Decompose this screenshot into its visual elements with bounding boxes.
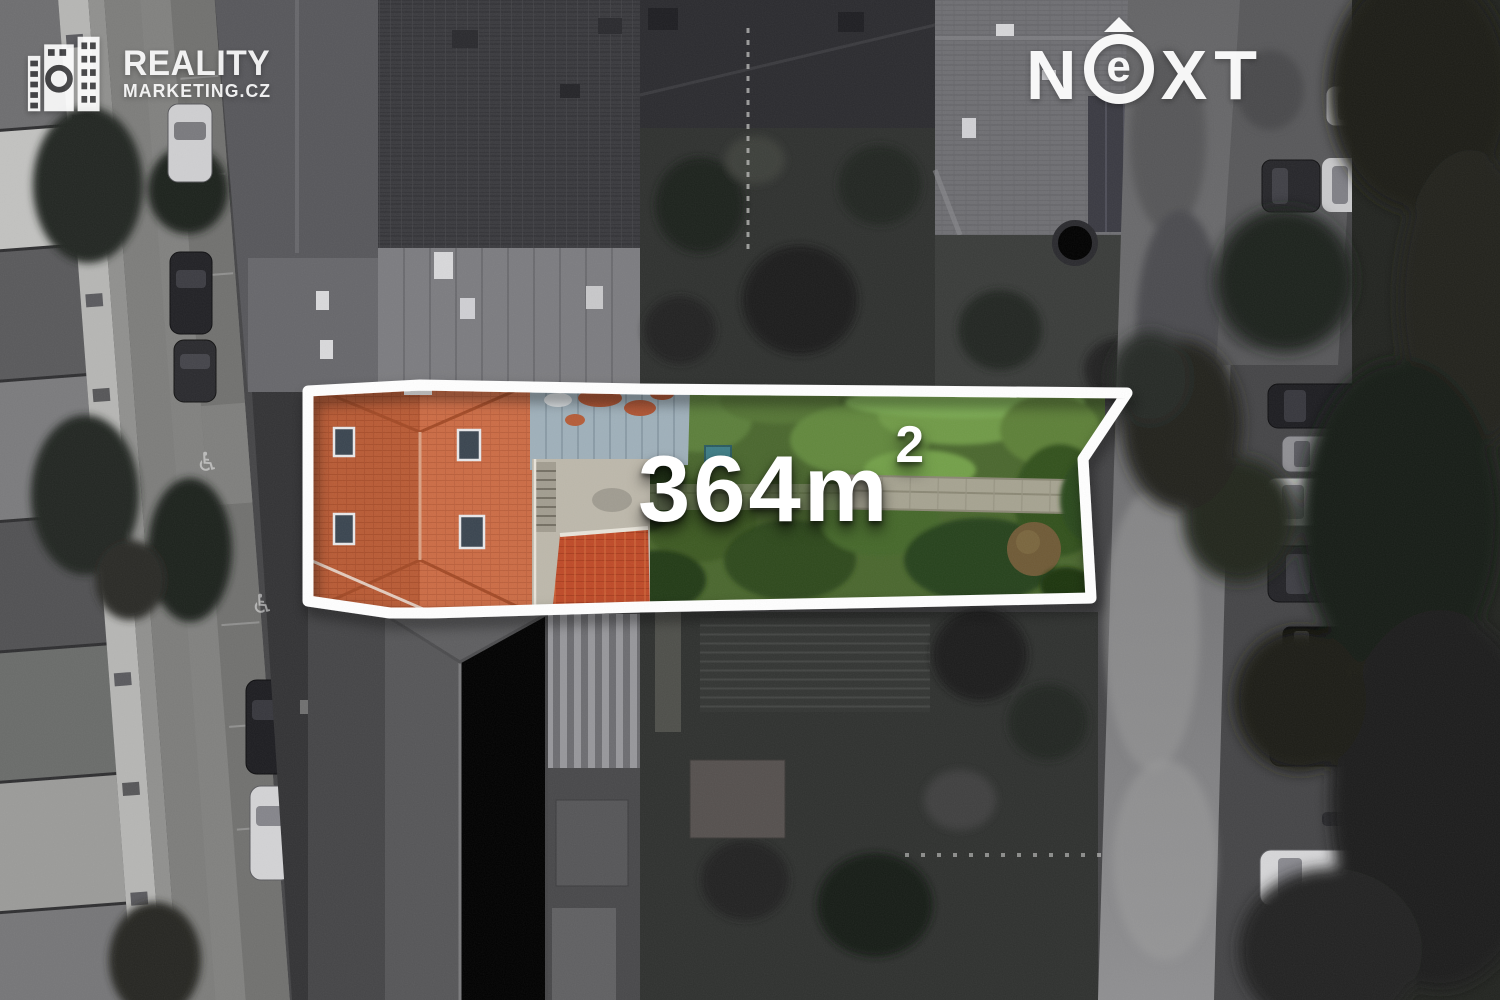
next-caret-icon — [1104, 17, 1134, 32]
reality-marketing-logo: REALITY MARKETING.CZ — [26, 34, 276, 114]
next-e-ring-icon: e — [1084, 34, 1154, 104]
reality-marketing-buildings-icon — [26, 34, 112, 114]
next-letter-n: N — [1026, 47, 1077, 104]
aerial-photo: 364m2 REALITY MARKETING.CZ N e XT ♿ ♿ — [0, 0, 1500, 1000]
reality-marketing-line2: MARKETING.CZ — [123, 83, 273, 100]
handicap-parking-marking: ♿ — [195, 447, 220, 479]
reality-marketing-line1: REALITY — [123, 48, 270, 80]
area-value: 364m — [638, 436, 890, 541]
reality-marketing-wordmark: REALITY MARKETING.CZ — [123, 48, 276, 100]
next-letters-xt: XT — [1161, 47, 1264, 104]
next-letter-e: e — [1106, 45, 1130, 89]
parcel-area-label: 364m2 — [638, 442, 927, 536]
area-exponent: 2 — [895, 415, 927, 473]
next-logo: N e XT — [1026, 34, 1264, 104]
handicap-parking-marking: ♿ — [250, 589, 275, 621]
